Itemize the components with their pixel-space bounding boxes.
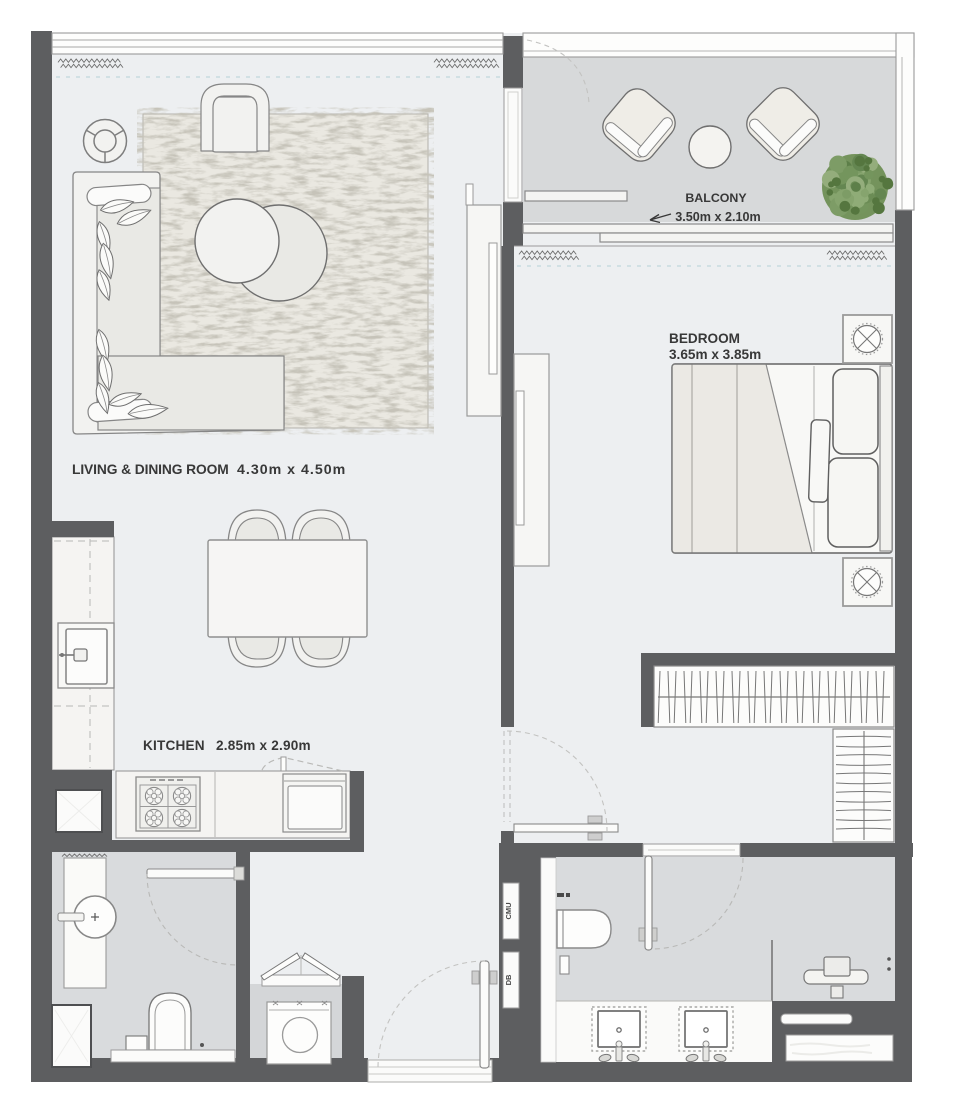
svg-text:KITCHEN: KITCHEN — [143, 738, 205, 753]
svg-text:2.85m x 2.90m: 2.85m x 2.90m — [216, 738, 311, 753]
svg-text:4.30m x 4.50m: 4.30m x 4.50m — [237, 462, 346, 478]
svg-text:CMU: CMU — [504, 902, 513, 919]
svg-text:DB: DB — [504, 974, 513, 985]
svg-text:BEDROOM: BEDROOM — [669, 331, 740, 346]
svg-text:3.65m x 3.85m: 3.65m x 3.85m — [669, 347, 761, 362]
svg-text:LIVING & DINING ROOM: LIVING & DINING ROOM — [72, 462, 229, 477]
svg-text:3.50m x 2.10m: 3.50m x 2.10m — [675, 210, 760, 224]
svg-text:BALCONY: BALCONY — [685, 191, 747, 205]
